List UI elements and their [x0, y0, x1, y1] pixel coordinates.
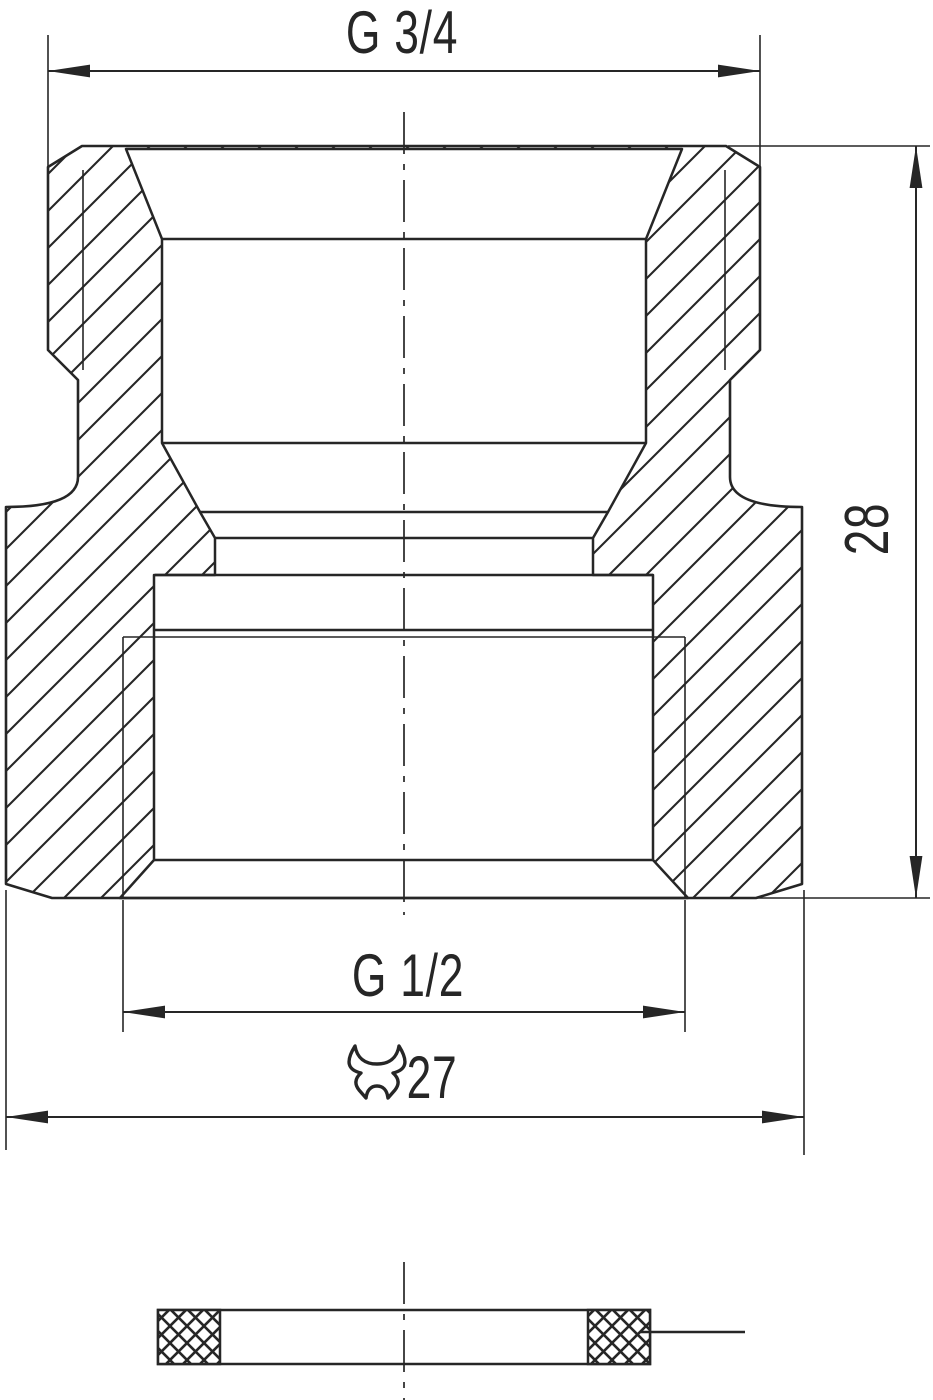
arrowhead-right	[718, 65, 760, 78]
bottom-thread-label: G 1/2	[352, 943, 464, 1010]
gasket-section-left	[158, 1310, 220, 1364]
arrowhead-right	[643, 1006, 685, 1019]
arrowhead-left	[48, 65, 90, 78]
arrowhead-left	[123, 1006, 165, 1019]
arrowhead-bottom	[910, 856, 923, 898]
gasket-section-right	[588, 1310, 650, 1364]
arrowhead-top	[910, 146, 923, 188]
wrench-icon	[349, 1046, 405, 1098]
technical-drawing: G 3/4 28 G 1/2 27	[0, 0, 933, 1400]
top-thread-label: G 3/4	[346, 0, 458, 67]
arrowhead-left	[6, 1111, 48, 1124]
wrench-size-label: 27	[407, 1045, 458, 1112]
dimension-bottom-thread: G 1/2	[123, 900, 685, 1032]
overall-height-label: 28	[832, 503, 901, 555]
drawing-canvas: G 3/4 28 G 1/2 27	[0, 0, 933, 1400]
fitting-section-view	[6, 112, 802, 915]
arrowhead-right	[762, 1111, 804, 1124]
gasket-section-view	[158, 1262, 745, 1400]
